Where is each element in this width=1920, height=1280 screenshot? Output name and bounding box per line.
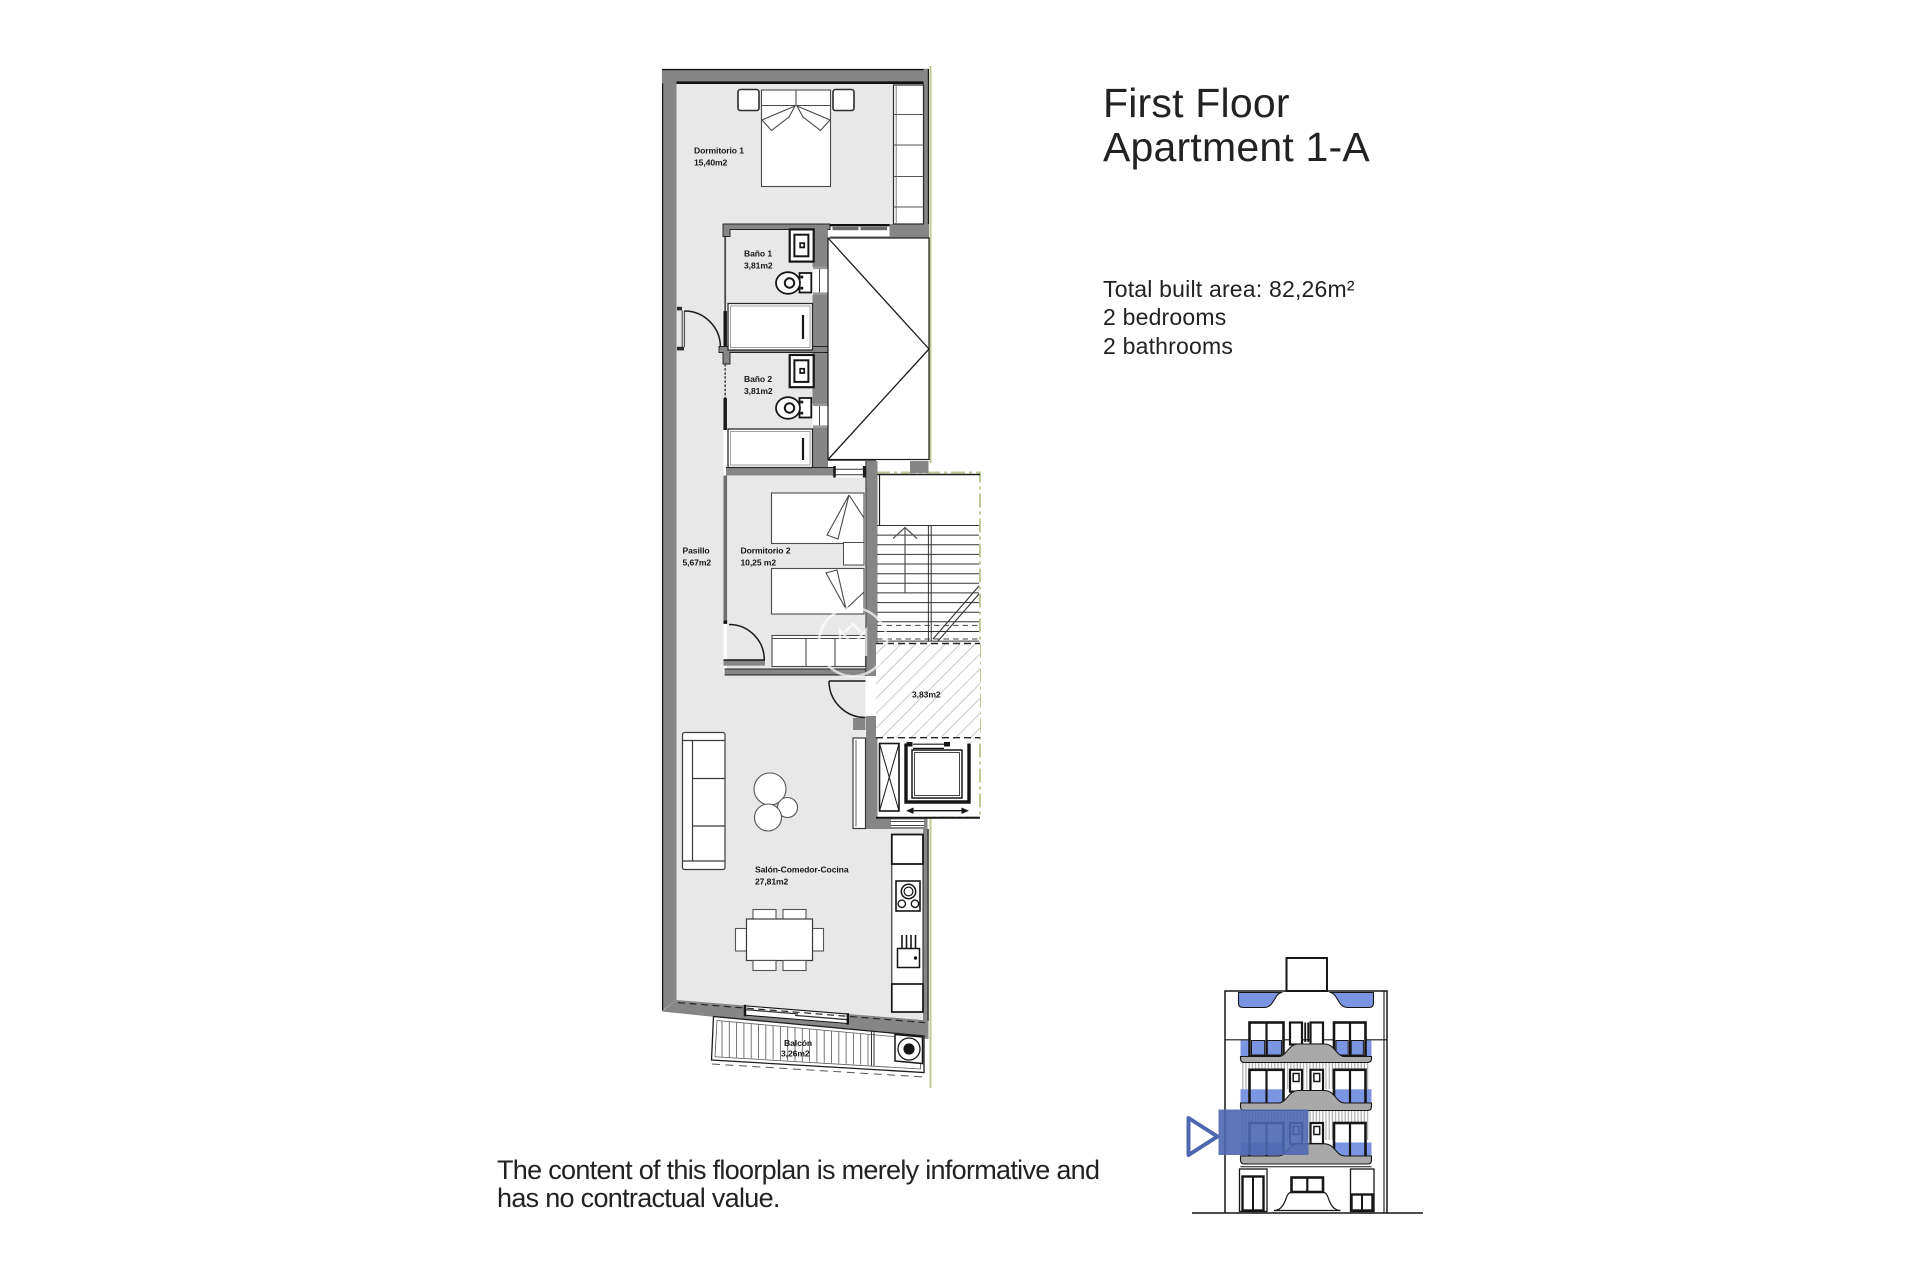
svg-text:Dormitorio 2: Dormitorio 2 <box>741 546 791 556</box>
svg-text:10,25 m2: 10,25 m2 <box>741 558 777 568</box>
svg-text:5,67m2: 5,67m2 <box>683 558 712 568</box>
svg-text:Balcón: Balcón <box>784 1038 812 1048</box>
svg-text:Pasillo: Pasillo <box>683 546 710 556</box>
svg-text:Salón-Comedor-Cocina: Salón-Comedor-Cocina <box>755 865 849 875</box>
svg-text:3,81m2: 3,81m2 <box>744 261 773 271</box>
svg-text:3,81m2: 3,81m2 <box>744 386 773 396</box>
svg-text:15,40m2: 15,40m2 <box>694 158 728 168</box>
svg-text:Baño 2: Baño 2 <box>744 374 772 384</box>
svg-text:Baño 1: Baño 1 <box>744 249 772 259</box>
svg-text:3,26m2: 3,26m2 <box>781 1049 810 1059</box>
svg-text:Dormitorio 1: Dormitorio 1 <box>694 146 744 156</box>
svg-text:3,83m2: 3,83m2 <box>912 690 941 700</box>
svg-text:27,81m2: 27,81m2 <box>755 877 789 887</box>
